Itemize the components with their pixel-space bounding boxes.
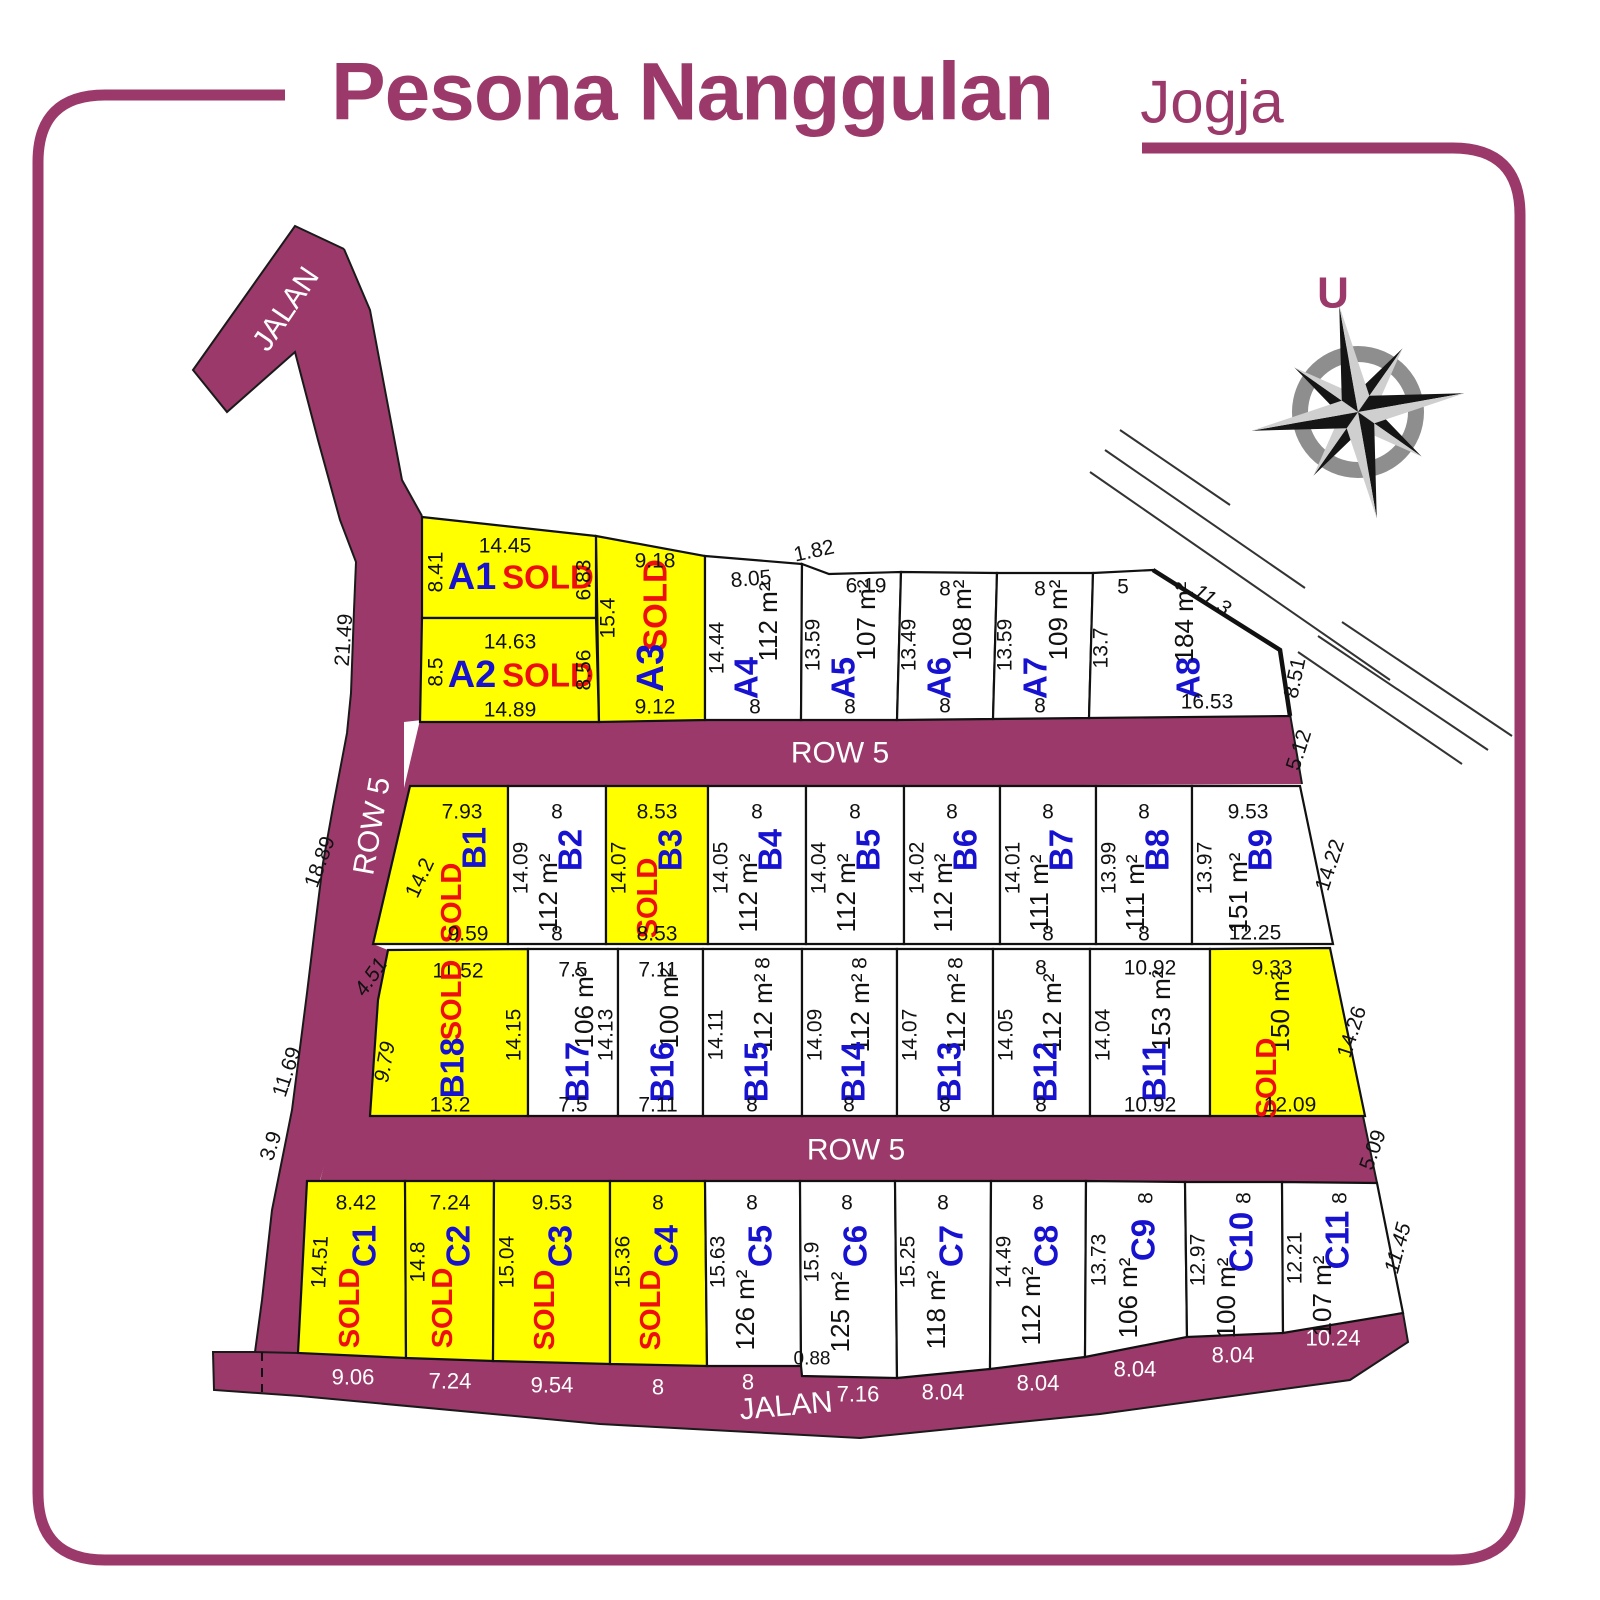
plot-a8-right-dim: 8.51	[1280, 656, 1311, 701]
plot-b18-status: SOLD	[436, 960, 468, 1041]
plot-a7-id: A7	[1017, 657, 1054, 699]
plot-a7-left-dim: 13.59	[994, 619, 1017, 672]
plot-b1-top-dim: 7.93	[442, 801, 483, 824]
plot-a1-id: A1	[448, 556, 497, 598]
plot-b5-left-dim: 14.04	[808, 841, 831, 894]
plot-b7-area: 111 m²	[1024, 854, 1054, 931]
plot-b4-top-dim: 8	[751, 801, 763, 824]
plot-c5-top-dim: 8	[746, 1192, 758, 1215]
plot-a2-top-dim: 14.63	[484, 631, 537, 654]
plot-c2-top-dim: 7.24	[430, 1192, 471, 1215]
plot-c1-left-dim: 14.51	[307, 1235, 333, 1289]
block-a: A1 SOLD 14.45 8.41 6.83 A2 SOLD 14.63 8.…	[420, 517, 1310, 722]
boundary-notch-dim: 1.82	[792, 536, 837, 567]
plot-b2-area: 112 m²	[533, 853, 563, 932]
plot-c3-id: C3	[542, 1225, 579, 1267]
plot-c4-left-dim: 15.36	[612, 1236, 635, 1289]
plot-a5-area: 107 m²	[851, 579, 881, 660]
compass-north-label: U	[1317, 269, 1349, 318]
plot-c9-area: 106 m²	[1113, 1257, 1143, 1338]
plot-a6-area: 108 m²	[947, 579, 977, 660]
plot-a4-left-dim: 14.44	[706, 621, 729, 674]
plot-b3-top-dim: 8.53	[637, 801, 678, 824]
plot-c3-bottom-dim: 9.54	[531, 1373, 574, 1398]
road-row5-lower-label: ROW 5	[807, 1134, 905, 1167]
plot-a1-left-dim: 8.41	[425, 552, 448, 593]
plot-b12-area: 112 m²	[1037, 973, 1067, 1052]
plot-c5-bottom-dim: 8	[742, 1370, 754, 1395]
plot-c5-area: 126 m²	[730, 1269, 760, 1350]
plot-c10-bottom-dim: 8.04	[1212, 1343, 1255, 1368]
plot-b2-bottom-dim: 8	[551, 923, 563, 946]
plot-a4-area: 112 m²	[753, 582, 783, 661]
plot-b11-bottom-dim: 10.92	[1124, 1094, 1177, 1117]
plot-a5-id: A5	[825, 657, 862, 699]
plot-b8-bottom-dim: 8	[1138, 923, 1150, 946]
plot-c8-id: C8	[1028, 1225, 1065, 1267]
plot-b8-left-dim: 13.99	[1098, 842, 1121, 895]
plot-a4-id: A4	[728, 656, 765, 699]
plot-b8-area: 111 m²	[1120, 854, 1150, 931]
plot-b13-top-dim: 8	[945, 957, 968, 969]
plot-b12-bottom-dim: 8	[1035, 1094, 1047, 1117]
plot-a2-right-dim: 8.56	[573, 650, 596, 691]
plot-a5-bottom-dim: 8	[844, 696, 856, 719]
plot-a1-right-dim: 6.83	[573, 560, 596, 601]
plot-b9-left-dim: 13.97	[1194, 842, 1217, 895]
plot-a3-id: A3	[630, 644, 672, 693]
plot-a8-left-dim: 13.7	[1090, 628, 1113, 669]
plot-b3-left-dim: 14.07	[608, 842, 631, 895]
plot-a1-top-dim: 14.45	[479, 535, 532, 558]
block-b-upper: 7.93 B1 SOLD 14.2 9.59 8 B2 112 m² 14.09…	[373, 786, 1349, 946]
plot-b12-left-dim: 14.05	[995, 1009, 1018, 1062]
plot-c5-left-dim: 15.63	[707, 1236, 730, 1289]
plot-c4-id: C4	[648, 1224, 685, 1267]
plot-c4-top-dim: 8	[652, 1192, 664, 1215]
plot-c11-left-dim: 12.21	[1284, 1232, 1307, 1285]
plot-b15-bottom-dim: 8	[746, 1094, 758, 1117]
plot-c1-id: C1	[346, 1225, 383, 1267]
plot-b18-right-dim: 14.15	[503, 1009, 526, 1062]
plot-c5-id: C5	[742, 1225, 779, 1267]
plot-a7-bottom-dim: 8	[1034, 695, 1046, 718]
plot-b17-bottom-dim: 7.5	[558, 1094, 587, 1117]
plot-a3-bottom-dim: 9.12	[635, 696, 676, 719]
plot-b7-left-dim: 14.01	[1002, 842, 1025, 895]
plot-c3-top-dim: 9.53	[532, 1192, 573, 1215]
plot-b4-area: 112 m²	[733, 853, 763, 932]
plot-b5-area: 112 m²	[831, 853, 861, 932]
plot-c1-top-dim: 8.42	[336, 1192, 377, 1215]
plot-b9-top-dim: 9.53	[1228, 801, 1269, 824]
plot-c10-area: 100 m²	[1211, 1257, 1241, 1338]
plot-b6-area: 112 m²	[928, 853, 958, 932]
plot-b14-bottom-dim: 8	[843, 1094, 855, 1117]
plot-c8-bottom-dim: 8.04	[1017, 1371, 1060, 1396]
plot-c10-top-dim: 8	[1233, 1192, 1256, 1204]
plot-a6-left-dim: 13.49	[898, 619, 921, 672]
left-dim-1: 21.49	[331, 613, 358, 667]
plot-c11-top-dim: 8	[1329, 1192, 1352, 1204]
plot-c1-bottom-dim: 9.06	[332, 1365, 375, 1390]
plot-c2-status: SOLD	[427, 1268, 459, 1349]
compass-rose: U	[1233, 269, 1483, 538]
plot-c3-status: SOLD	[529, 1270, 561, 1351]
plot-b5-top-dim: 8	[849, 801, 861, 824]
plot-b14-left-dim: 14.09	[804, 1009, 827, 1062]
plot-c4-status: SOLD	[635, 1270, 667, 1351]
plot-c6-top-dim: 8	[841, 1192, 853, 1215]
plot-b6-left-dim: 14.02	[906, 842, 929, 895]
plot-b13-bottom-dim: 8	[939, 1094, 951, 1117]
page-subtitle: Jogja	[1140, 69, 1284, 136]
plot-b1-bottom-dim: 9.59	[448, 923, 489, 946]
plot-a8-bottom-dim: 16.53	[1181, 691, 1234, 714]
plot-c4-bottom-dim: 8	[652, 1375, 664, 1400]
plot-a5-left-dim: 13.59	[802, 619, 825, 672]
plot-a2-left-dim: 8.5	[425, 657, 448, 686]
plot-c6-bottom-dim: 7.16	[837, 1382, 880, 1407]
plot-c9-top-dim: 8	[1135, 1192, 1158, 1204]
plot-a8-top-dim: 5	[1117, 576, 1129, 599]
plot-c7-left-dim: 15.25	[897, 1236, 920, 1289]
plot-c11-area: 107 m²	[1307, 1255, 1337, 1336]
plot-b18-id: B18	[434, 1038, 471, 1099]
plot-b11-area: 153 m²	[1146, 969, 1176, 1050]
plot-a3-top-dim: 9.18	[635, 550, 676, 573]
plot-a2-id: A2	[448, 654, 497, 696]
plot-b3-bottom-dim: 8.53	[637, 923, 678, 946]
plot-c8-left-dim: 14.49	[993, 1236, 1016, 1289]
plot-b13-area: 112 m²	[941, 973, 971, 1052]
plot-b9-bottom-dim: 12.25	[1229, 922, 1282, 945]
plot-c6-left-dim: 15.9	[801, 1242, 824, 1283]
plot-c2-id: C2	[440, 1225, 477, 1267]
plot-b2-left-dim: 14.09	[510, 842, 533, 895]
plot-c2-left-dim: 14.8	[407, 1242, 430, 1283]
plot-b15-top-dim: 8	[752, 957, 775, 969]
plot-c2-bottom-dim: 7.24	[429, 1369, 472, 1394]
plot-b-sold150-bottom-dim: 12.09	[1264, 1094, 1317, 1117]
plot-a6-bottom-dim: 8	[939, 695, 951, 718]
plot-c11-bottom-dim: 10.24	[1305, 1326, 1360, 1351]
plot-a6-id: A6	[921, 657, 958, 699]
plot-b14-area: 112 m²	[845, 973, 875, 1052]
plot-c8-area: 112 m²	[1016, 1266, 1046, 1345]
plot-a4-bottom-dim: 8	[749, 696, 761, 719]
plot-c1-status: SOLD	[334, 1268, 366, 1349]
plot-b8-top-dim: 8	[1138, 801, 1150, 824]
plot-b16-area: 100 m²	[654, 967, 684, 1048]
plot-c9-bottom-dim: 8.04	[1114, 1357, 1157, 1382]
road-row5-upper-label: ROW 5	[791, 737, 889, 770]
page-title: Pesona Nanggulan	[331, 47, 1053, 138]
plot-a3-left-dim: 15.4	[597, 597, 620, 638]
plot-b7-bottom-dim: 8	[1042, 923, 1054, 946]
plot-a7-area: 109 m²	[1043, 579, 1073, 660]
compass-long-points	[1233, 287, 1483, 537]
plot-b18-bottom-dim: 13.2	[430, 1094, 471, 1117]
plot-c7-bottom-dim: 8.04	[922, 1380, 965, 1405]
plot-b4-left-dim: 14.05	[710, 842, 733, 895]
plot-c6-id: C6	[837, 1225, 874, 1267]
plot-c10-left-dim: 12.97	[1187, 1234, 1210, 1287]
plot-c3-left-dim: 15.04	[496, 1235, 519, 1288]
plot-a2-bottom-dim: 14.89	[484, 699, 537, 722]
plot-a3-status: SOLD	[637, 559, 674, 651]
plot-b2-top-dim: 8	[551, 801, 563, 824]
plot-c9-id: C9	[1125, 1219, 1162, 1261]
block-b-lower: 11.52 4.51 SOLD B18 14.15 9.79 13.2 7.5 …	[350, 948, 1371, 1118]
siteplan-page: Pesona Nanggulan Jogja U	[0, 0, 1600, 1600]
plot-b11-left-dim: 14.04	[1092, 1008, 1115, 1061]
plot-b17-right-dim: 14.13	[595, 1009, 618, 1062]
plot-b15-area: 112 m²	[748, 973, 778, 1052]
siteplan-canvas: Pesona Nanggulan Jogja U	[0, 0, 1600, 1600]
plot-b13-left-dim: 14.07	[899, 1009, 922, 1062]
plot-c7-top-dim: 8	[937, 1192, 949, 1215]
plot-b7-top-dim: 8	[1042, 801, 1054, 824]
plot-c6-area: 125 m²	[825, 1271, 855, 1352]
plot-c7-area: 118 m²	[921, 1270, 951, 1349]
plot-b6-top-dim: 8	[946, 801, 958, 824]
plot-b15-left-dim: 14.11	[705, 1010, 728, 1061]
plot-b14-top-dim: 8	[849, 957, 872, 969]
plot-c9-left-dim: 13.73	[1088, 1234, 1111, 1287]
plot-b16-bottom-dim: 7.11	[638, 1094, 677, 1117]
plot-c8-top-dim: 8	[1032, 1192, 1044, 1215]
plot-c7-id: C7	[933, 1225, 970, 1267]
